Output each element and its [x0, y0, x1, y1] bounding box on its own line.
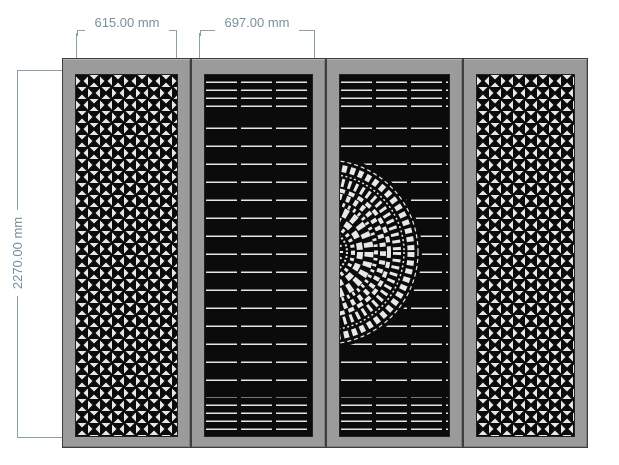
star-grille-pattern	[76, 75, 177, 436]
gate-panel-2	[191, 58, 326, 448]
horizontal-slats-dense-top	[206, 75, 311, 113]
dim-615-label: 615.00 mm	[85, 15, 169, 31]
mandala-ornament-right-half	[339, 152, 426, 352]
panel-2-cutout-area	[204, 74, 313, 437]
gate-panel-3	[326, 58, 463, 448]
gate-panel-4	[463, 58, 588, 448]
gate-panel-1	[62, 58, 191, 448]
dim-2270-extension-bottom	[17, 437, 63, 438]
dim-2270-extension-top	[17, 70, 63, 71]
horizontal-slats-dense-bottom	[341, 398, 448, 436]
mandala-ornament-left-half	[308, 152, 313, 352]
horizontal-slats-dense-bottom	[206, 398, 311, 436]
panel-3-cutout-area	[339, 74, 450, 437]
dim-697-extension-right	[314, 33, 315, 58]
dim-697-extension-left	[199, 33, 200, 58]
horizontal-slats	[206, 75, 311, 436]
panel-1-cutout-area	[75, 74, 178, 437]
dim-615-tick-left	[77, 30, 78, 36]
dim-697-tick-left	[200, 30, 201, 36]
horizontal-slats-dense-top	[341, 75, 448, 113]
star-grille-pattern	[477, 75, 574, 436]
dim-697-label: 697.00 mm	[215, 15, 299, 31]
dim-2270-label: 2270.00 mm	[10, 210, 26, 296]
panel-4-cutout-area	[476, 74, 575, 437]
